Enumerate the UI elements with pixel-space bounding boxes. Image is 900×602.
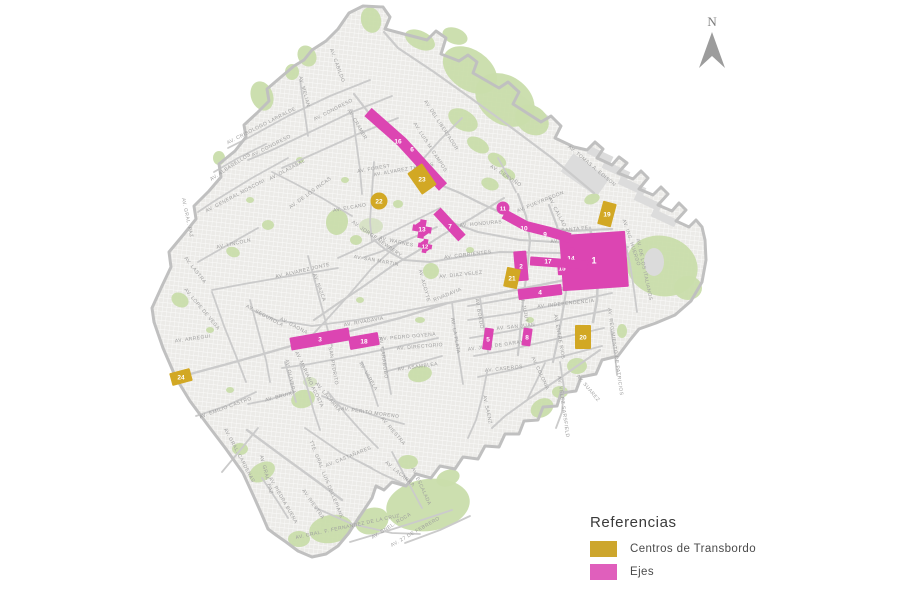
marker-number: 3 xyxy=(318,336,322,343)
north-label: N xyxy=(707,14,717,29)
street-label: AV. GRAL. PAZ xyxy=(180,197,194,238)
marker-number: 12 xyxy=(422,244,428,250)
buenos-aires-map: AV. CABILDOAV. MELIANAV. CRISOLOGO LARRA… xyxy=(0,0,900,602)
marker-number: 23 xyxy=(418,176,426,183)
street-label: AV. SUAREZ xyxy=(575,374,601,403)
legend: Referencias Centros de Transbordo Ejes xyxy=(590,514,756,587)
marker-number: 24 xyxy=(177,374,185,381)
marker-number: 8 xyxy=(525,334,529,341)
ejes-swatch xyxy=(590,564,617,580)
park-area xyxy=(226,387,234,393)
legend-item-centros: Centros de Transbordo xyxy=(590,541,756,557)
legend-item-ejes: Ejes xyxy=(590,564,756,580)
park-area xyxy=(341,177,349,183)
marker-number: 4 xyxy=(538,289,542,296)
marker-number: 21 xyxy=(508,275,516,282)
marker-number: 2 xyxy=(519,263,523,270)
park-area xyxy=(206,327,214,333)
marker-number: 5 xyxy=(486,336,490,343)
legend-item-label: Centros de Transbordo xyxy=(630,543,756,555)
north-arrow: N xyxy=(699,14,725,68)
marker-number: 16 xyxy=(394,138,402,145)
park-area xyxy=(262,220,274,230)
marker-number: 20 xyxy=(579,334,587,341)
park-area xyxy=(415,317,425,323)
marker-number: 22 xyxy=(375,198,383,205)
north-arrow-icon xyxy=(699,32,725,68)
marker-number: 18 xyxy=(360,338,368,345)
park-area xyxy=(350,235,362,245)
marker-number: 10 xyxy=(520,225,528,232)
marker-number: 9 xyxy=(543,231,547,238)
map-figure: AV. CABILDOAV. MELIANAV. CRISOLOGO LARRA… xyxy=(0,0,900,602)
park-area xyxy=(356,297,364,303)
marker-number: 17 xyxy=(544,258,552,265)
marker-number: 7 xyxy=(448,223,452,230)
marker-number: 1 xyxy=(591,255,596,265)
centros-swatch xyxy=(590,541,617,557)
marker-number: 11 xyxy=(500,206,507,212)
park-area xyxy=(393,200,403,208)
legend-item-label: Ejes xyxy=(630,566,654,578)
marker-number: 6 xyxy=(410,146,414,153)
marker-number: 19 xyxy=(603,211,611,218)
marker-number: 13 xyxy=(418,226,426,233)
park-area xyxy=(246,197,254,203)
park-area xyxy=(617,324,627,338)
legend-title: Referencias xyxy=(590,514,756,531)
